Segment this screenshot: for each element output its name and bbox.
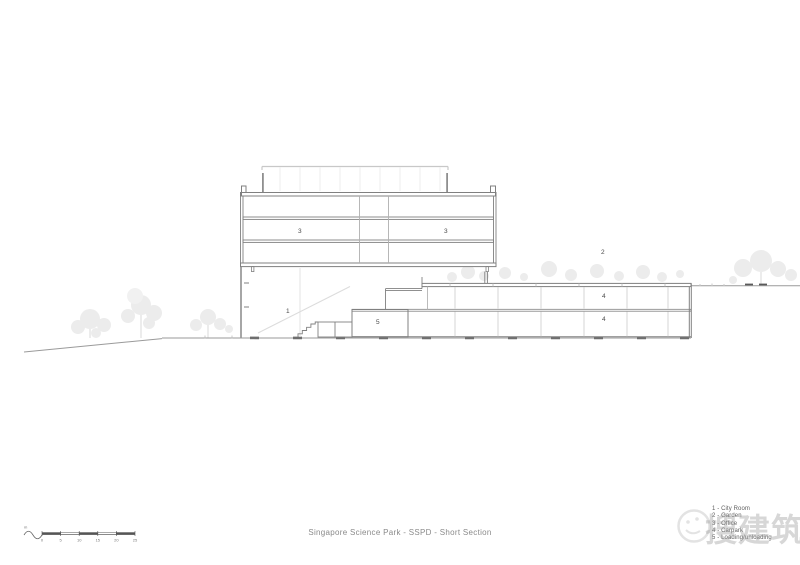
city-room [241, 267, 350, 338]
architectural-section-canvas: m 0 5 10 15 20 25 3 3 1 5 4 4 2 Singapor… [0, 0, 800, 565]
space-label-loading: 5 [376, 319, 380, 326]
basement-block [352, 277, 691, 338]
scale-tick-label: 10 [77, 538, 82, 543]
scale-tick-label: 5 [59, 538, 62, 543]
space-label-garden: 2 [601, 249, 605, 256]
scale-tick-label: 15 [96, 538, 101, 543]
section-linework: m 0 5 10 15 20 25 [0, 0, 800, 565]
tower-block [241, 186, 497, 284]
scale-tick-label: 20 [114, 538, 119, 543]
space-label-carpark-upper: 4 [602, 293, 606, 300]
tower-core-lines [360, 196, 389, 263]
loading-bay [352, 310, 408, 337]
space-label-office-right: 3 [444, 228, 448, 235]
watermark-text: 搜建筑 [705, 505, 800, 551]
tower-foot [252, 267, 254, 272]
trees-far-right [729, 250, 797, 286]
roof-pergola [262, 167, 448, 193]
space-label-office-left: 3 [298, 228, 302, 235]
terrace-step [386, 277, 423, 309]
scale-tick-label: 25 [133, 538, 138, 543]
pergola-post [446, 173, 448, 193]
trees-left [71, 288, 233, 338]
space-label-carpark-lower: 4 [602, 316, 606, 323]
space-label-city-room: 1 [286, 308, 290, 315]
pergola-post [262, 173, 264, 193]
stairs [298, 322, 352, 337]
escalator-line [258, 287, 350, 334]
tower-foot [486, 267, 488, 272]
scale-tick-label: 0 [41, 538, 44, 543]
carpark-columns [455, 287, 668, 337]
